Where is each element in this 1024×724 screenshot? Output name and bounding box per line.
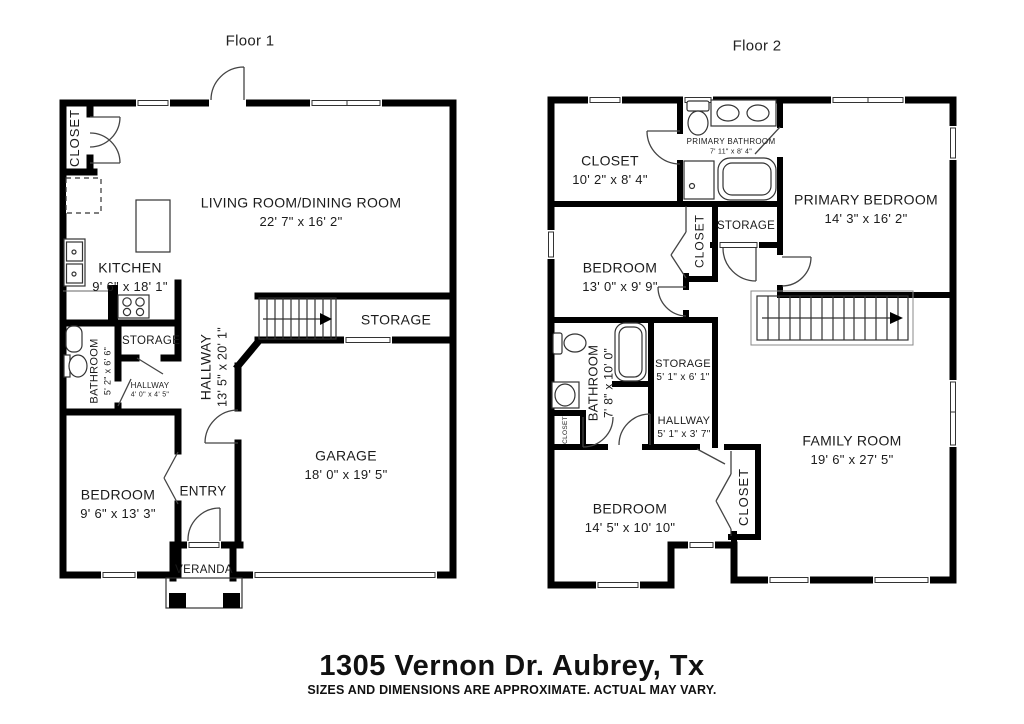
room-dims-kitchen: 9' 6" x 18' 1": [92, 279, 168, 295]
room-label-hallway-f2: HALLWAY: [658, 415, 711, 429]
hallway-f1-name: HALLWAY: [197, 327, 215, 407]
room-label-hallway-small: HALLWAY: [131, 381, 170, 391]
stove-icon: [118, 295, 149, 318]
room-dims-living: 22' 7" x 16' 2": [259, 214, 342, 230]
room-label-bathroom-f2: BATHROOM 7' 8" x 10' 0": [585, 345, 616, 422]
room-label-storage-hall: STORAGE: [122, 334, 180, 348]
toilet2-icon: [553, 333, 586, 354]
room-dims-hallway-f2: 5' 1" x 3' 7": [657, 429, 710, 442]
room-label-bedroom-mid: BEDROOM: [583, 259, 657, 277]
room-label-storage-garage: STORAGE: [361, 311, 431, 329]
bathroom-f1-dims: 5' 2" x 6' 6": [102, 338, 113, 403]
fridge-icon: [66, 178, 101, 213]
room-label-kitchen: KITCHEN: [98, 259, 162, 277]
room-label-primary-bath: PRIMARY BATHROOM: [687, 137, 776, 147]
floor1-stairs: [259, 298, 336, 339]
room-label-family: FAMILY ROOM: [802, 432, 901, 450]
bath-sink-icon: [66, 326, 82, 352]
bathroom-f1-name: BATHROOM: [89, 338, 103, 403]
room-label-bedroom-f1: BEDROOM: [81, 486, 155, 504]
room-label-storage-top: STORAGE: [717, 219, 775, 233]
floor2-stairs: [751, 291, 913, 345]
floorplan-drawing: [0, 0, 1024, 724]
room-dims-bedroom-bottom: 14' 5" x 10' 10": [585, 520, 676, 536]
sink2-icon: [552, 382, 579, 408]
primary-tub-icon: [718, 158, 776, 200]
room-dims-bedroom-mid: 13' 0" x 9' 9": [582, 279, 658, 295]
hallway-f1-dims: 13' 5" x 20' 1": [215, 327, 231, 407]
room-label-bathroom-f1: BATHROOM 5' 2" x 6' 6": [89, 338, 114, 403]
room-dims-garage: 18' 0" x 19' 5": [304, 467, 387, 483]
room-dims-hallway-small: 4' 0" x 4' 5": [131, 392, 169, 401]
veranda-deck-icon: [166, 578, 242, 608]
address-title: 1305 Vernon Dr. Aubrey, Tx: [319, 648, 704, 684]
room-label-closet-f1: CLOSET: [67, 109, 83, 167]
double-vanity-icon: [711, 100, 776, 126]
disclaimer-text: SIZES AND DIMENSIONS ARE APPROXIMATE. AC…: [307, 683, 716, 699]
room-dims-storage-mid: 5' 1" x 6' 1": [656, 372, 709, 385]
shower-icon: [684, 161, 714, 199]
room-dims-primary-bath: 7' 11" x 8' 4": [710, 149, 752, 158]
floor1-title: Floor 1: [226, 33, 275, 52]
room-label-closet-bottom: CLOSET: [736, 468, 752, 526]
room-dims-family: 19' 6" x 27' 5": [810, 452, 893, 468]
room-label-garage: GARAGE: [315, 447, 377, 465]
room-label-storage-mid: STORAGE: [655, 358, 711, 372]
room-label-entry: ENTRY: [179, 484, 226, 501]
room-dims-closet-top: 10' 2" x 8' 4": [572, 172, 648, 188]
bathroom-f2-dims: 7' 8" x 10' 0": [602, 345, 617, 422]
room-label-primary-bedroom: PRIMARY BEDROOM: [794, 191, 938, 209]
kitchen-island-icon: [136, 200, 170, 252]
bathroom-f2-name: BATHROOM: [585, 345, 601, 422]
room-label-hallway-f1: HALLWAY 13' 5" x 20' 1": [197, 327, 230, 407]
tub2-icon: [615, 323, 646, 381]
room-dims-primary-bedroom: 14' 3" x 16' 2": [824, 211, 907, 227]
floor2-title: Floor 2: [733, 38, 782, 57]
room-dims-bedroom-f1: 9' 6" x 13' 3": [80, 506, 156, 522]
primary-toilet-icon: [687, 101, 709, 135]
toilet-icon: [64, 355, 87, 377]
room-label-closet-mid: CLOSET: [693, 214, 708, 268]
room-label-living: LIVING ROOM/DINING ROOM: [201, 194, 402, 212]
room-label-closet-tiny: CLOSET: [562, 416, 570, 444]
room-label-bedroom-bottom: BEDROOM: [593, 500, 667, 518]
floorplan-page: Floor 1 CLOSET LIVING ROOM/DINING ROOM 2…: [0, 0, 1024, 724]
room-label-closet-top: CLOSET: [581, 152, 639, 170]
kitchen-sink-icon: [64, 239, 85, 286]
room-label-veranda: VERANDA: [175, 563, 233, 577]
